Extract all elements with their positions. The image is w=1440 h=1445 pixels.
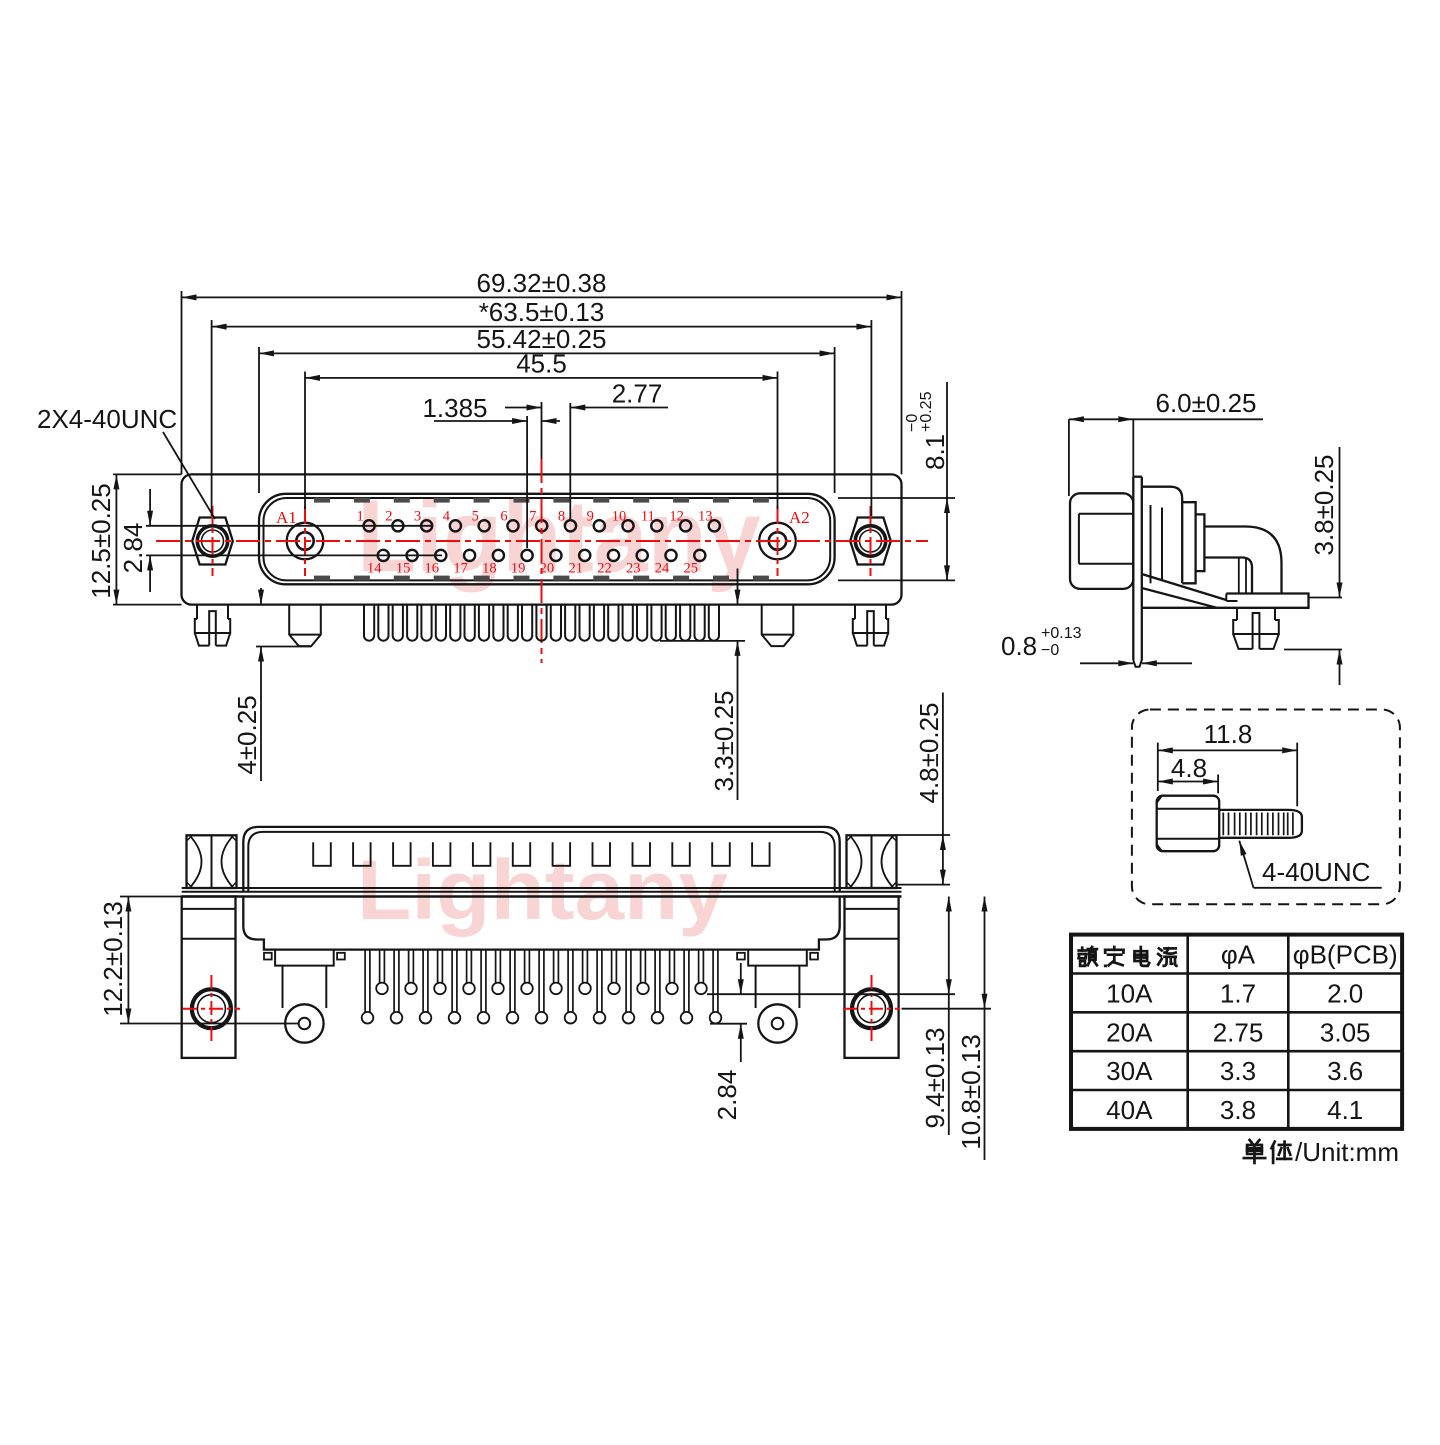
svg-text:9: 9 [587,509,594,525]
svg-text:3: 3 [414,509,421,525]
svg-text:12: 12 [669,509,684,525]
svg-text:24: 24 [655,561,670,577]
svg-text:22: 22 [597,561,612,577]
svg-text:12.2±0.13: 12.2±0.13 [98,901,128,1016]
svg-text:4.1: 4.1 [1327,1095,1363,1125]
svg-text:14: 14 [367,561,382,577]
svg-text:10.8±0.13: 10.8±0.13 [956,1034,986,1149]
svg-text:21: 21 [568,561,583,577]
svg-text:45.5: 45.5 [516,349,567,379]
svg-text:*63.5±0.13: *63.5±0.13 [479,297,605,327]
svg-text:10: 10 [612,509,627,525]
svg-text:6: 6 [500,509,507,525]
svg-text:0.8: 0.8 [1001,631,1037,661]
svg-text:−0: −0 [1041,642,1059,659]
svg-text:1.385: 1.385 [422,393,487,423]
svg-text:40A: 40A [1106,1095,1153,1125]
svg-text:4-40UNC: 4-40UNC [1262,857,1370,887]
svg-text:1.7: 1.7 [1220,979,1256,1009]
svg-text:20A: 20A [1106,1017,1153,1047]
svg-text:/Unit:mm: /Unit:mm [1295,1137,1399,1167]
svg-text:1: 1 [356,509,363,525]
svg-text:−0: −0 [904,414,921,432]
svg-text:17: 17 [453,561,468,577]
svg-text:8.1: 8.1 [920,434,950,470]
svg-text:4.8±0.25: 4.8±0.25 [914,702,944,803]
svg-text:φB(PCB): φB(PCB) [1293,940,1398,970]
svg-text:10A: 10A [1106,979,1153,1009]
svg-text:18: 18 [482,561,497,577]
svg-text:13: 13 [698,509,713,525]
svg-text:2.84: 2.84 [118,523,148,574]
svg-text:30A: 30A [1106,1056,1153,1086]
svg-text:5: 5 [472,509,479,525]
svg-text:12.5±0.25: 12.5±0.25 [86,483,116,598]
svg-text:A1: A1 [276,508,297,527]
svg-text:2.0: 2.0 [1327,979,1363,1009]
svg-text:A2: A2 [789,508,810,527]
svg-text:2.84: 2.84 [712,1070,742,1121]
svg-text:φA: φA [1221,940,1256,970]
svg-text:3.8±0.25: 3.8±0.25 [1309,454,1339,555]
svg-text:2: 2 [385,509,392,525]
svg-text:+0.13: +0.13 [1041,625,1082,642]
svg-text:11.8: 11.8 [1204,719,1253,749]
svg-text:23: 23 [626,561,641,577]
svg-text:3.8: 3.8 [1220,1095,1256,1125]
svg-text:3.3: 3.3 [1220,1056,1256,1086]
svg-text:19: 19 [511,561,526,577]
svg-text:3.3±0.25: 3.3±0.25 [709,690,739,791]
svg-text:3.6: 3.6 [1327,1056,1363,1086]
svg-text:8: 8 [558,509,565,525]
svg-text:15: 15 [396,561,411,577]
svg-text:4: 4 [443,509,451,525]
svg-text:9.4±0.13: 9.4±0.13 [920,1027,950,1128]
svg-text:2.77: 2.77 [612,379,663,409]
svg-text:2.75: 2.75 [1213,1017,1264,1047]
svg-text:7: 7 [529,509,536,525]
svg-text:4±0.25: 4±0.25 [232,695,262,774]
svg-text:3.05: 3.05 [1320,1017,1371,1047]
svg-text:11: 11 [641,509,655,525]
svg-text:69.32±0.38: 69.32±0.38 [477,268,607,298]
svg-text:4.8: 4.8 [1171,753,1207,783]
svg-text:2X4-40UNC: 2X4-40UNC [37,404,177,434]
svg-text:6.0±0.25: 6.0±0.25 [1155,388,1256,418]
svg-text:25: 25 [684,561,699,577]
svg-text:16: 16 [425,561,440,577]
